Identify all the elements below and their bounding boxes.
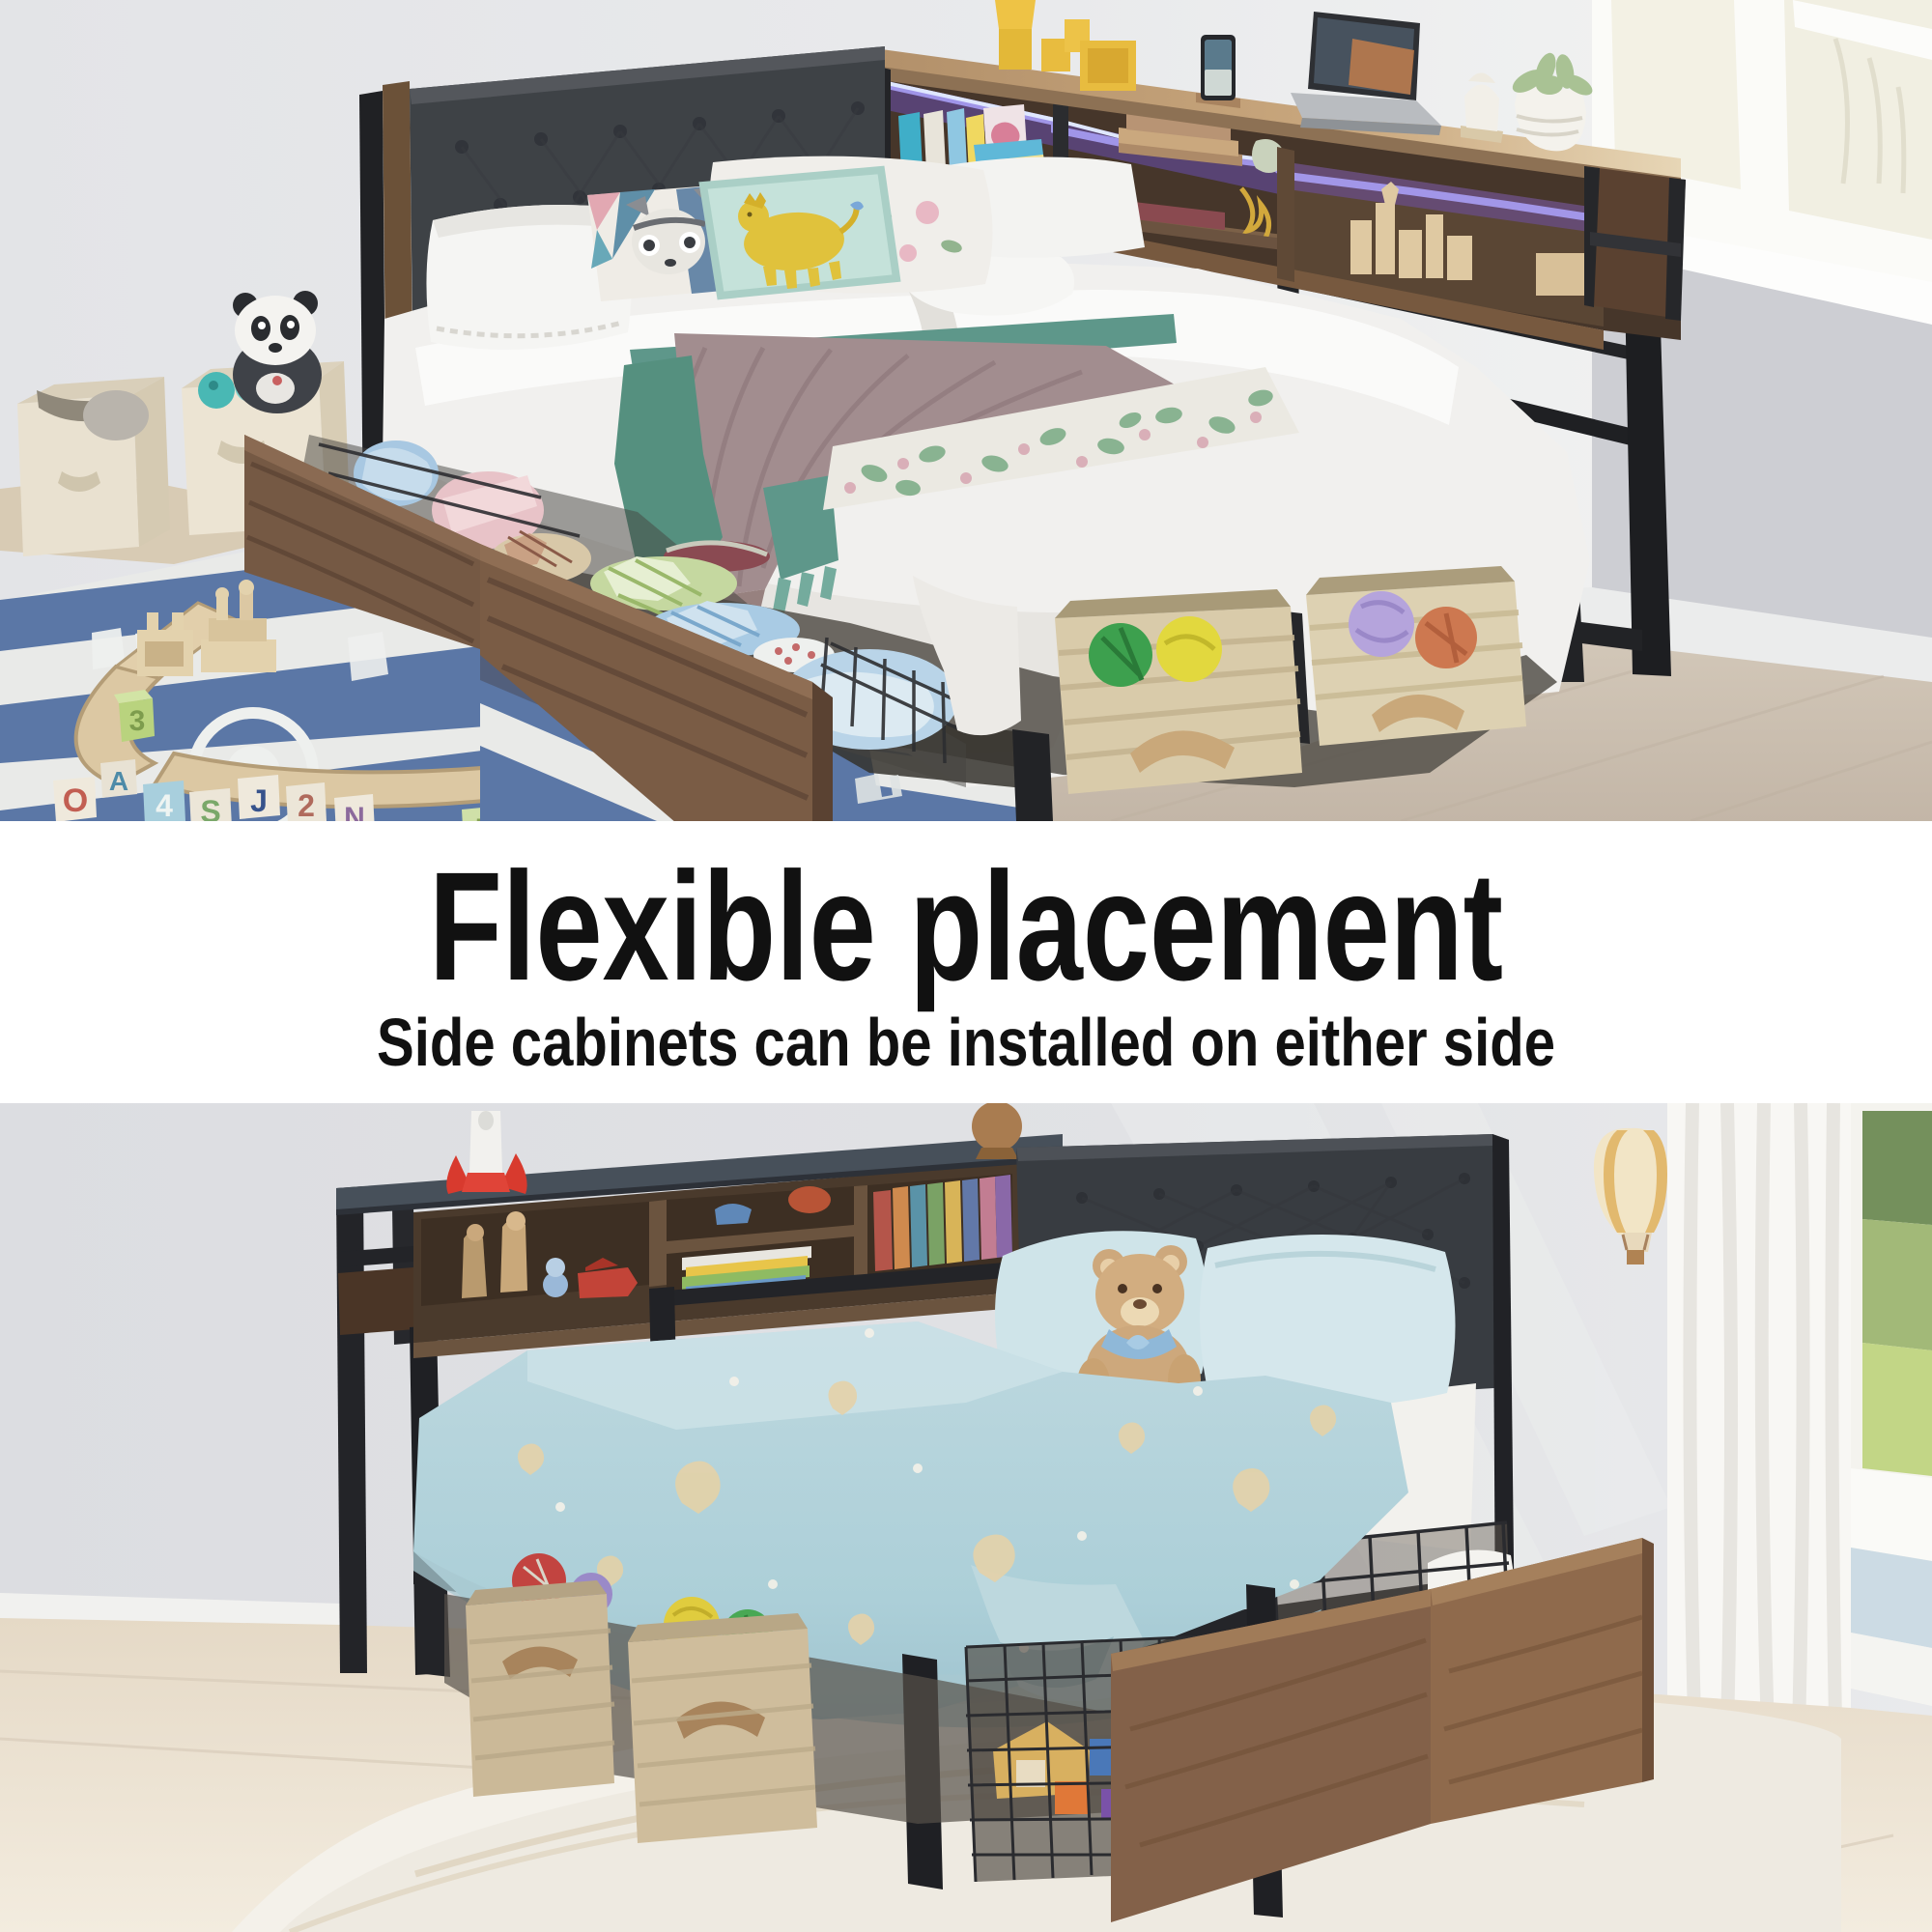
svg-text:Side cabinets can be installed: Side cabinets can be installed on either… xyxy=(377,1005,1555,1080)
svg-text:2: 2 xyxy=(298,788,315,823)
svg-text:O: O xyxy=(63,782,88,819)
svg-text:4: 4 xyxy=(156,788,173,823)
svg-text:A: A xyxy=(109,766,128,796)
svg-text:Flexible placement: Flexible placement xyxy=(429,839,1503,1012)
svg-text:3: 3 xyxy=(129,705,146,737)
svg-text:J: J xyxy=(250,783,268,818)
